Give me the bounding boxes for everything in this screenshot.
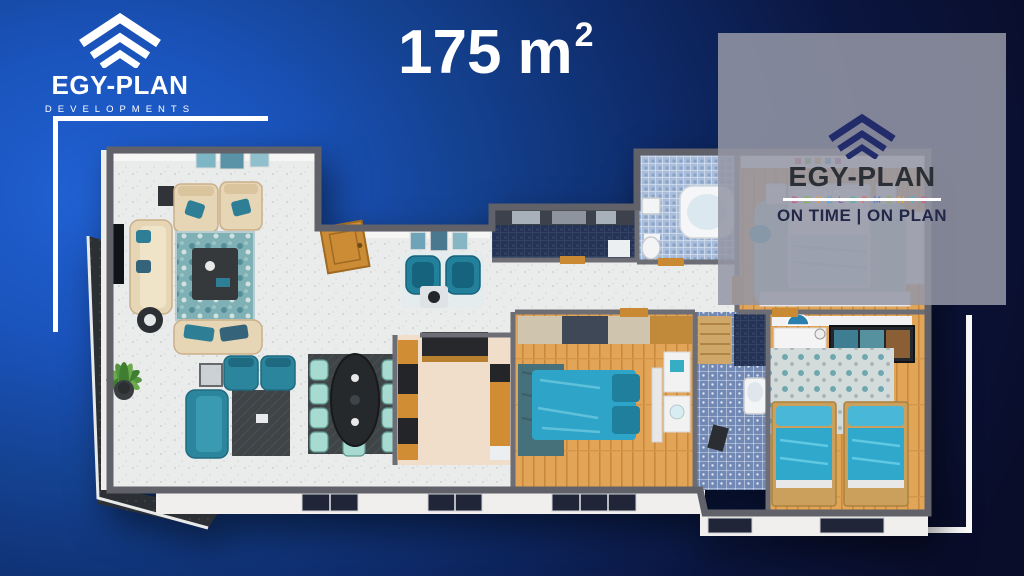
poster-background: EGY-PLAN DEVELOPMENTS 175 m 2 [0,0,1024,576]
area-unit: m [517,22,572,84]
brand-logo: EGY-PLAN DEVELOPMENTS [40,12,200,115]
watermark-panel: EGY-PLAN DEVELOPMENTS ON TIME | ON PLAN [718,33,1006,305]
brand-name: EGY-PLAN [52,70,189,101]
kitchen [395,332,512,465]
bedroom-2 [515,312,695,490]
corner-line-bottom-right-vertical [966,315,972,533]
area-value: 175 [398,22,501,84]
bedroom-3 [768,312,928,513]
corner-line-top-left-horizontal [53,116,268,121]
dining-area [308,354,400,456]
area-title: 175 m 2 [398,22,594,84]
brand-tagline: DEVELOPMENTS [45,104,195,115]
watermark-slogan: ON TIME | ON PLAN [777,206,947,226]
area-exponent: 2 [575,18,594,52]
chevron-roof-icon-watermark [823,113,901,159]
watermark-divider-line [783,198,941,201]
lounge-area [186,356,295,458]
corridor [512,260,737,312]
chevron-roof-icon [74,12,166,68]
corner-line-top-left-vertical [53,116,58,332]
laundry-room [492,207,637,260]
watermark-brand-name: EGY-PLAN [788,161,935,193]
bathroom-2 [695,312,768,490]
